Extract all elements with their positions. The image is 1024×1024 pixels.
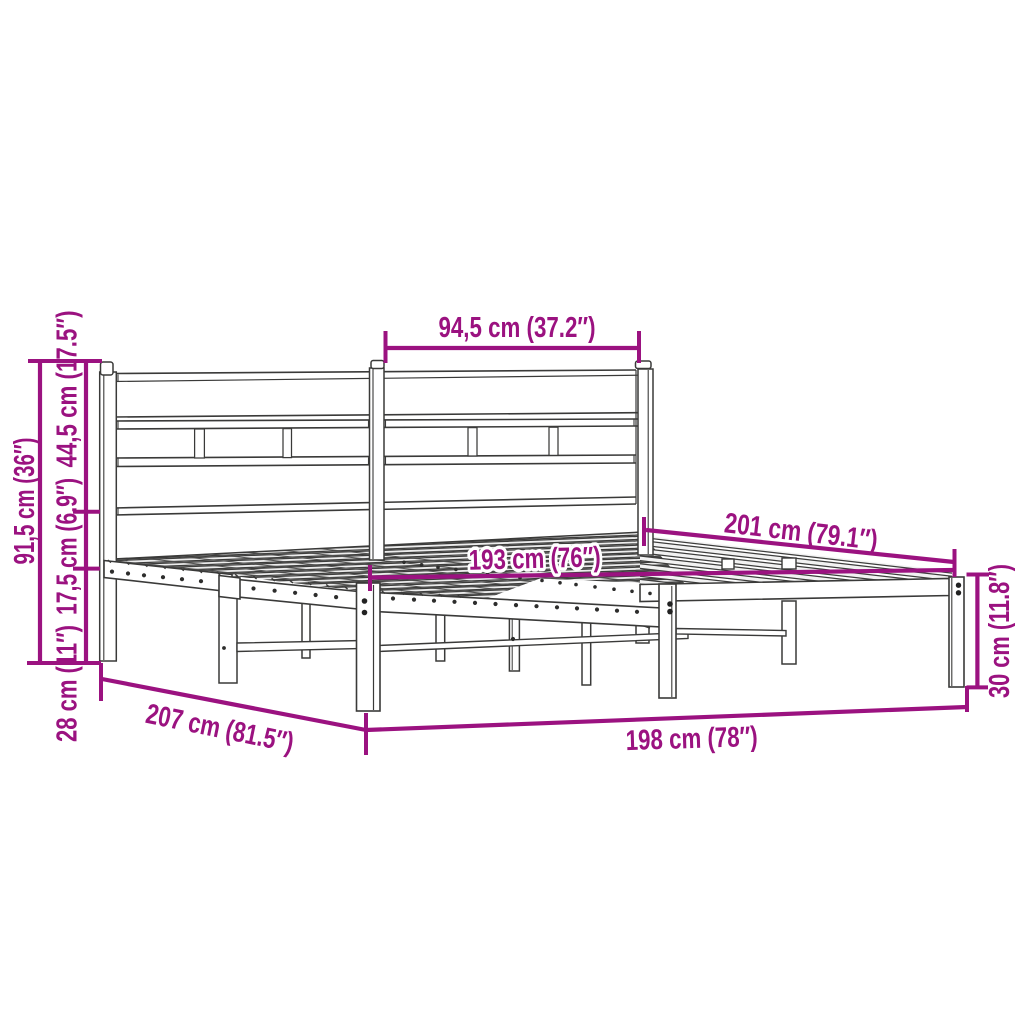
svg-text:17,5 cm (6.9″): 17,5 cm (6.9″): [52, 478, 84, 615]
svg-text:198 cm (78″): 198 cm (78″): [625, 721, 758, 757]
svg-text:193 cm (76″): 193 cm (76″): [468, 541, 601, 576]
svg-text:28 cm (11″): 28 cm (11″): [52, 625, 84, 742]
svg-text:94,5 cm (37.2″): 94,5 cm (37.2″): [439, 312, 596, 344]
svg-text:44,5 cm (17.5″): 44,5 cm (17.5″): [52, 311, 84, 468]
svg-text:91,5 cm (36″): 91,5 cm (36″): [9, 438, 41, 565]
svg-text:30 cm (11.8″): 30 cm (11.8″): [984, 564, 1016, 698]
svg-text:207 cm (81.5″): 207 cm (81.5″): [143, 698, 296, 759]
